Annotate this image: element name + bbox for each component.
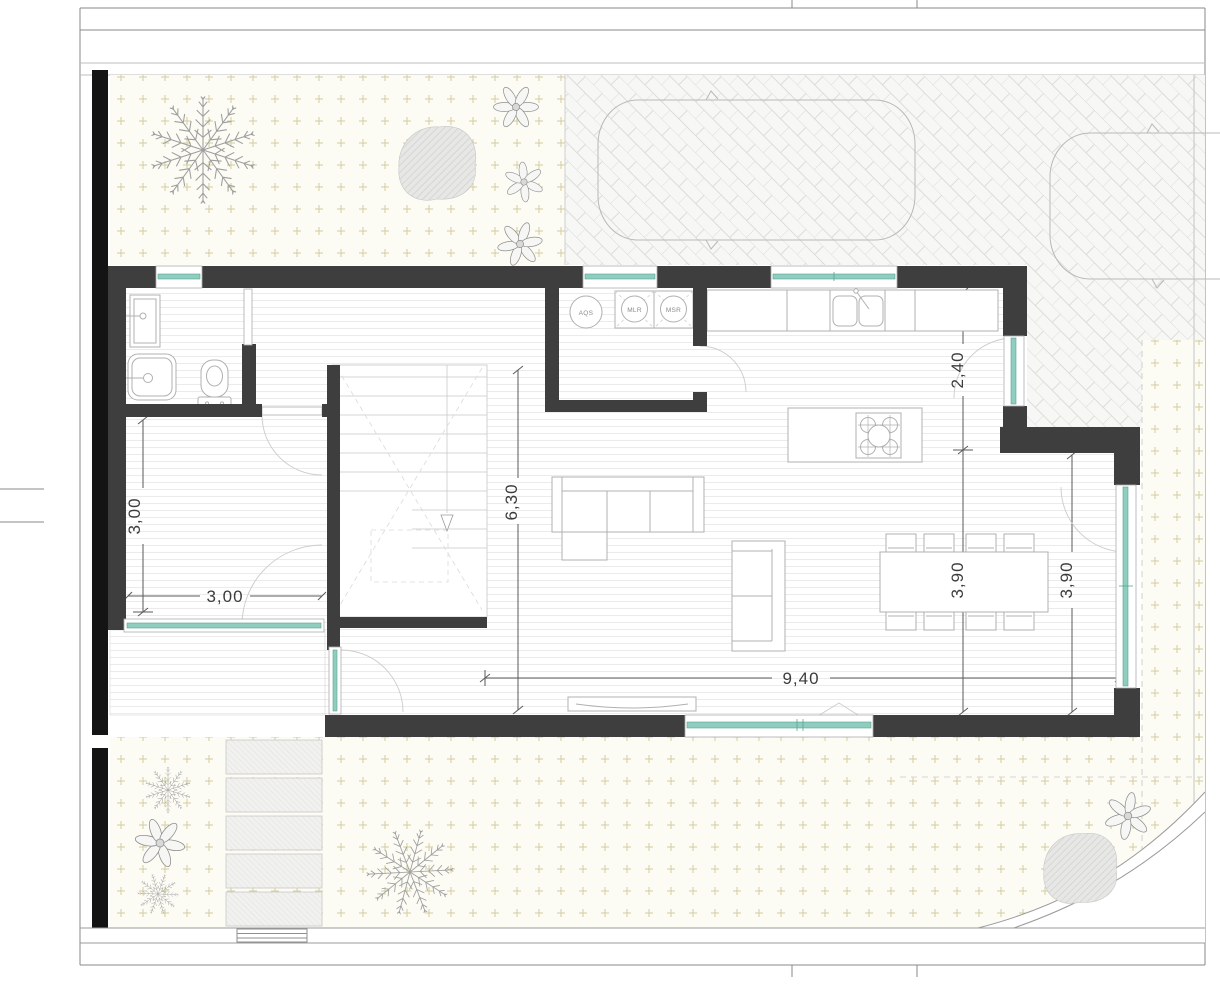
dim-room-width: 3,00 [206,587,243,606]
kitchen-island [788,408,922,462]
dim-living-depth: 3,90 [948,561,967,598]
bath-south-wall [126,404,262,417]
washer-label: MLR [627,307,642,314]
paver-slab [226,778,322,812]
laundry-east-wall [693,288,707,346]
dining-chair [966,534,996,552]
dining-chair [966,612,996,630]
north-wall [895,266,1027,288]
south-wall [325,715,685,737]
loveseat [732,541,785,651]
step-wall [1000,427,1140,453]
north-wall [200,266,585,288]
north-wall [655,266,773,288]
dining-chair [886,612,916,630]
water-heater-label: AQS [579,310,594,317]
bath-door-leaf [262,407,322,415]
staircase [332,365,487,617]
west-wall [108,266,126,630]
side-paving [1027,265,1205,340]
floor-plan-drawing: 3,00 3,00 6,30 9,40 2,40 3,90 3,90 AQS M… [0,0,1220,1000]
site-boundary-wall [92,70,108,735]
bath-east-wall [242,344,256,406]
shower-tray [126,354,176,400]
entry-terrace-deck [110,630,325,715]
garden-pavers [226,740,322,926]
hedge-bush [1044,833,1117,903]
window-kitchen [771,266,897,288]
window-east-tall [1116,485,1136,688]
east-corner-wall [1114,453,1140,485]
dryer-label: MSR [666,307,681,314]
window-room-south [124,619,324,632]
dining-chair [1004,534,1034,552]
shower-glass-partition [244,289,252,345]
toilet [198,360,231,410]
paver-slab [226,892,322,926]
dining-chair [924,612,954,630]
dim-room-depth: 3,00 [125,497,144,534]
window-laundry [583,266,657,288]
stair-west-wall [327,365,340,617]
south-wall [873,715,1140,737]
dining-chair [924,534,954,552]
kitchen-counter [707,289,998,331]
dining-chair [1004,612,1034,630]
sofa-chaise [562,532,607,560]
dim-kitchen-depth: 2,40 [948,351,967,388]
side-paving-2 [1027,340,1142,427]
window-bath [156,266,202,288]
dining-chair [886,534,916,552]
paver-slab [226,740,322,774]
sliding-glass-door [685,715,873,737]
kitchen-east-wall [1003,288,1027,336]
entry-glass-door [329,647,341,714]
laundry-east-wall [693,392,707,412]
dim-living-length: 9,40 [782,669,819,688]
floor-plan-sheet: 3,00 3,00 6,30 9,40 2,40 3,90 3,90 AQS M… [0,0,1220,1000]
laundry-west-wall [545,288,559,412]
dim-hall-depth: 6,30 [502,483,521,520]
site-bottom-edge [80,928,1205,943]
driveway-paving [565,75,1205,265]
window-kitchen-east [1004,336,1024,406]
dim-window-span: 3,90 [1057,561,1076,598]
site-boundary-wall [92,748,108,932]
media-console [568,697,696,711]
laundry-south-wall [545,400,707,412]
hedge-bush [399,126,476,200]
kitchen-sink-bowl [833,296,857,326]
paver-slab [226,816,322,850]
stair-south-wall [327,617,487,628]
bath-vanity [126,295,160,347]
entry-gate-step [237,929,307,942]
kitchen-faucet-base [854,289,858,293]
paver-slab [226,854,322,888]
